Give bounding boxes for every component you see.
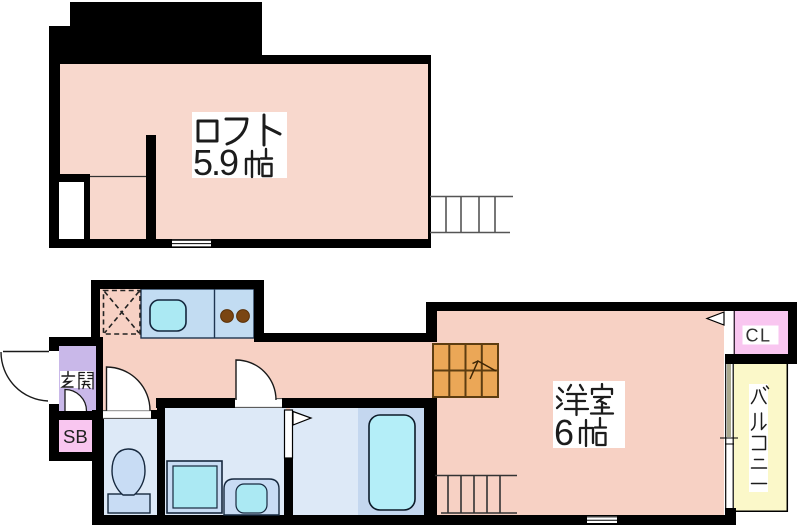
svg-text:SB: SB [63, 426, 88, 447]
svg-text:5.9: 5.9 [193, 142, 239, 183]
svg-text:CL: CL [746, 326, 772, 346]
svg-text:6: 6 [554, 412, 574, 453]
